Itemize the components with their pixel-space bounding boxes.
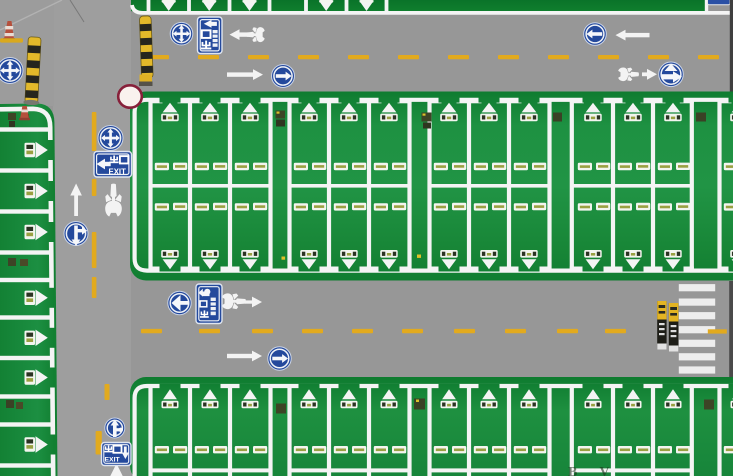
svg-text:BV: BV [568,465,631,476]
svg-text:EXIT: EXIT [109,168,127,177]
svg-text:EXIT: EXIT [105,457,121,464]
